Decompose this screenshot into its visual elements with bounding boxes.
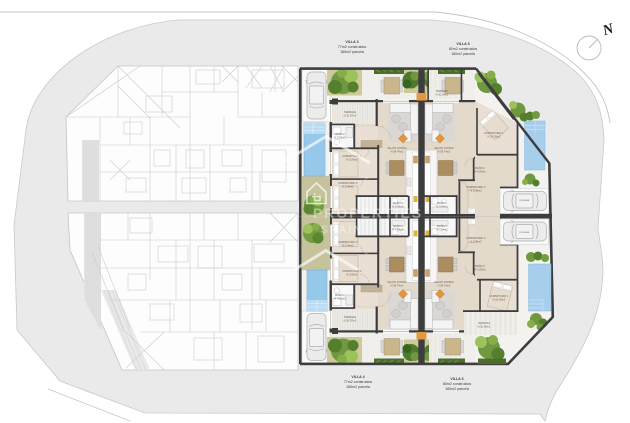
svg-text:77m2 construidos: 77m2 construidos	[338, 45, 367, 49]
svg-text:COCHERA: COCHERA	[519, 199, 530, 202]
svg-text:80m2 construidos: 80m2 construidos	[443, 382, 472, 386]
svg-text:N 10.39m2: N 10.39m2	[493, 297, 506, 301]
svg-text:SPAIN: SPAIN	[321, 224, 364, 236]
svg-text:DORMITORIO 3: DORMITORIO 3	[339, 181, 359, 185]
svg-text:SALON COCINA: SALON COCINA	[434, 146, 454, 150]
svg-text:N 10.06m2: N 10.06m2	[436, 92, 449, 96]
svg-text:TERRAZA: TERRAZA	[436, 89, 448, 93]
svg-text:N 10.07m2: N 10.07m2	[344, 318, 357, 322]
svg-text:N 38.74m2: N 38.74m2	[438, 149, 451, 153]
svg-text:SALON COCINA: SALON COCINA	[434, 280, 454, 284]
svg-text:N 38.74m2: N 38.74m2	[438, 283, 451, 287]
svg-text:DORMITORIO 2: DORMITORIO 2	[343, 269, 363, 273]
svg-text:N 4.29m2: N 4.29m2	[474, 169, 486, 173]
svg-text:180m2 parcela: 180m2 parcela	[445, 387, 469, 391]
svg-text:N 3.54m2: N 3.54m2	[436, 204, 448, 208]
svg-text:N 5.94m2: N 5.94m2	[342, 184, 354, 188]
svg-text:DORMITORIO 2: DORMITORIO 2	[467, 236, 487, 240]
svg-text:180m2 parcela: 180m2 parcela	[340, 50, 364, 54]
svg-text:VILLA 3: VILLA 3	[345, 40, 358, 44]
svg-text:TERRAZA: TERRAZA	[344, 315, 356, 319]
svg-text:SALON COCINA: SALON COCINA	[387, 280, 407, 284]
svg-text:VILLA 5: VILLA 5	[456, 42, 469, 46]
svg-text:N 5.98m2: N 5.98m2	[470, 188, 482, 192]
svg-text:N 10.07m2: N 10.07m2	[344, 113, 357, 117]
svg-text:DORMITORIO 3: DORMITORIO 3	[339, 240, 359, 244]
svg-text:SALON COCINA: SALON COCINA	[387, 146, 407, 150]
svg-text:TERRAZA: TERRAZA	[478, 321, 490, 325]
svg-text:DORMITORIO 2: DORMITORIO 2	[467, 185, 487, 189]
svg-text:N 4.29m2: N 4.29m2	[474, 267, 486, 271]
svg-text:N 4.06m2: N 4.06m2	[392, 227, 404, 231]
svg-text:N 10.39m2: N 10.39m2	[488, 134, 501, 138]
svg-text:N 3.52m2: N 3.52m2	[334, 135, 346, 139]
svg-text:DORMITORIO 1: DORMITORIO 1	[490, 294, 510, 298]
svg-text:77m2 construidos: 77m2 construidos	[344, 380, 373, 384]
svg-text:N 38.74m2: N 38.74m2	[391, 283, 404, 287]
svg-text:VILLA 6: VILLA 6	[450, 377, 463, 381]
svg-text:PROPERTIES: PROPERTIES	[313, 205, 423, 221]
svg-text:VILLA 4: VILLA 4	[351, 375, 364, 379]
svg-text:N 3.54m2: N 3.54m2	[436, 227, 448, 231]
svg-text:N 10.06m2: N 10.06m2	[478, 324, 491, 328]
svg-text:180m2 parcela: 180m2 parcela	[346, 385, 370, 389]
svg-text:COCHERA: COCHERA	[519, 231, 530, 234]
svg-text:N 9.29m2: N 9.29m2	[346, 157, 358, 161]
svg-text:N 5.94m2: N 5.94m2	[342, 243, 354, 247]
svg-text:TERRAZA: TERRAZA	[344, 110, 356, 114]
svg-text:N 9.29m2: N 9.29m2	[346, 272, 358, 276]
svg-text:N 5.98m2: N 5.98m2	[470, 239, 482, 243]
svg-text:N 3.52m2: N 3.52m2	[334, 296, 346, 300]
svg-text:180m2 parcela: 180m2 parcela	[451, 52, 475, 56]
svg-text:80m2 construidos: 80m2 construidos	[449, 47, 478, 51]
svg-text:N 38.74m2: N 38.74m2	[391, 149, 404, 153]
svg-text:DORMITORIO 1: DORMITORIO 1	[485, 131, 505, 135]
